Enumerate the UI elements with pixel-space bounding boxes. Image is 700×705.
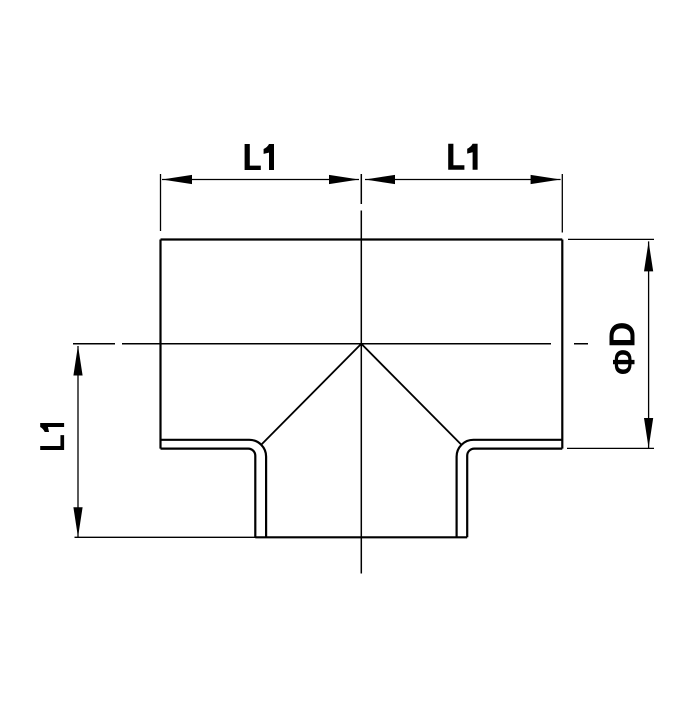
svg-text:ΦD: ΦD xyxy=(602,322,643,375)
